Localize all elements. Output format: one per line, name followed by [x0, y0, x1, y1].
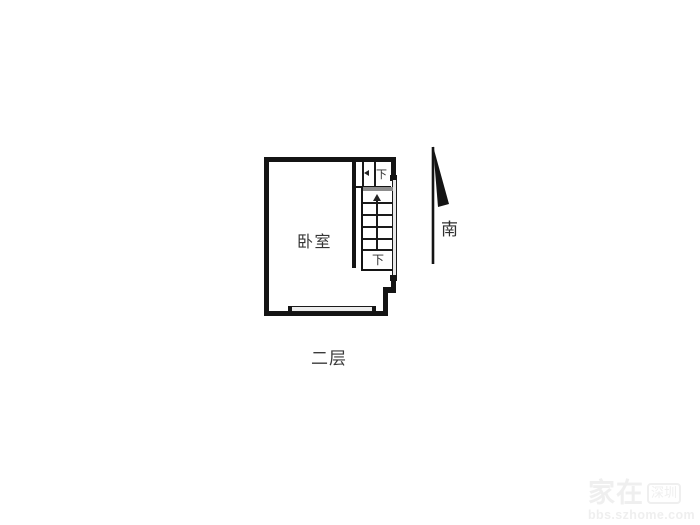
stair-landing: 下 [356, 162, 391, 188]
watermark-site: bbs.szhome.com [588, 508, 698, 522]
stair-run-label: 下 [363, 251, 393, 268]
wall-right-lower [383, 291, 388, 316]
stair-tread [363, 226, 393, 228]
stair-direction-line [376, 200, 378, 249]
staircase: 下 [361, 187, 393, 271]
watermark: 家在 深圳 bbs.szhome.com [588, 480, 698, 522]
window-cap [390, 275, 397, 281]
watermark-badge: 深圳 [647, 483, 681, 503]
stair-tread [363, 238, 393, 240]
window-bottom [292, 306, 372, 312]
compass-label: 南 [441, 215, 458, 240]
floor-plan-image: 下 下 南 卧室 二层 家在 深圳 bbs.szhome.com [0, 0, 700, 525]
watermark-brand: 家在 [588, 480, 644, 507]
window-cap [372, 306, 376, 313]
stair-down-arrow-icon [364, 170, 369, 176]
stair-beam [363, 187, 393, 191]
floor-label: 二层 [311, 344, 347, 369]
stair-tread [363, 214, 393, 216]
compass-arrow-icon [425, 140, 465, 270]
room-label-bedroom: 卧室 [297, 228, 332, 252]
stair-up-arrow-icon [373, 194, 381, 201]
wall-left [264, 157, 269, 316]
stair-tread [363, 202, 393, 204]
stair-landing-label: 下 [376, 166, 387, 182]
